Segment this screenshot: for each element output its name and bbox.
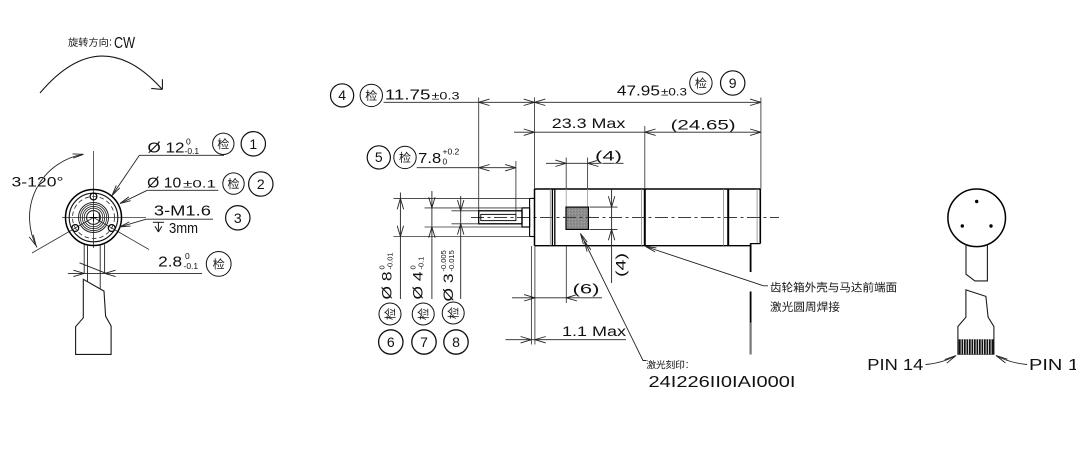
svg-text:+0.2: +0.2 (443, 147, 460, 157)
svg-text::: : (109, 37, 112, 49)
svg-text:-0.1: -0.1 (185, 146, 200, 156)
svg-text:-0.1: -0.1 (184, 261, 199, 271)
svg-text:8: 8 (452, 334, 460, 350)
svg-text:(4): (4) (613, 253, 628, 277)
svg-text:-0.015: -0.015 (447, 250, 456, 271)
svg-text:(24.65): (24.65) (671, 117, 736, 133)
svg-text:Ø 8: Ø 8 (380, 272, 395, 300)
svg-text:0: 0 (443, 157, 448, 167)
svg-text:±0.3: ±0.3 (432, 91, 460, 103)
svg-text:Ø 10: Ø 10 (147, 175, 181, 192)
svg-text:4: 4 (338, 87, 346, 103)
svg-text:PIN 14: PIN 14 (867, 357, 923, 374)
svg-text:1.1 Max: 1.1 Max (562, 324, 626, 339)
svg-text:±0.3: ±0.3 (661, 87, 687, 99)
svg-text:Ø 4: Ø 4 (411, 271, 426, 300)
svg-text:9: 9 (729, 75, 737, 91)
svg-text:5: 5 (375, 149, 383, 165)
svg-text:7.8: 7.8 (418, 150, 441, 167)
svg-text:7: 7 (420, 334, 428, 350)
svg-text:(6): (6) (573, 282, 600, 297)
svg-text:3mm: 3mm (169, 221, 198, 237)
svg-text::: : (686, 359, 689, 371)
svg-text:Ø 12: Ø 12 (148, 140, 185, 157)
svg-text:0: 0 (186, 137, 191, 147)
svg-text:0: 0 (185, 251, 190, 261)
svg-text:(4): (4) (595, 149, 622, 164)
svg-text:3-120°: 3-120° (12, 174, 64, 190)
svg-text:6: 6 (387, 334, 395, 350)
svg-text:-0.01: -0.01 (386, 252, 395, 269)
svg-text:CW: CW (114, 35, 136, 52)
svg-text:1: 1 (249, 136, 257, 152)
svg-text:11.75: 11.75 (385, 88, 431, 104)
svg-text:2.8: 2.8 (158, 254, 182, 271)
svg-text:24I226II0IAI000I: 24I226II0IAI000I (649, 374, 796, 391)
svg-text:3: 3 (234, 210, 242, 226)
svg-text:-0.1: -0.1 (417, 257, 426, 270)
svg-text:Ø 3: Ø 3 (441, 274, 456, 302)
svg-text:3-M1.6: 3-M1.6 (154, 204, 211, 220)
svg-text:PIN 1: PIN 1 (1029, 357, 1076, 374)
svg-text:2: 2 (257, 176, 265, 192)
svg-text:47.95: 47.95 (617, 84, 660, 100)
svg-text:±0.1: ±0.1 (183, 179, 216, 191)
svg-text:23.3 Max: 23.3 Max (552, 115, 626, 131)
